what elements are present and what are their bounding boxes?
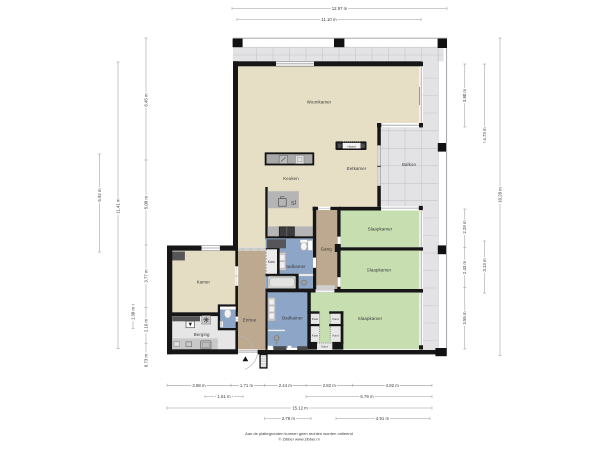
svg-text:3.55 m: 3.55 m xyxy=(462,311,467,325)
svg-text:2.29 m: 2.29 m xyxy=(462,220,467,234)
svg-text:0.73 m: 0.73 m xyxy=(143,354,148,368)
svg-text:Badkamer: Badkamer xyxy=(282,316,303,321)
svg-text:3.13 m: 3.13 m xyxy=(482,258,487,272)
svg-text:© Zibber www.zibber.nl: © Zibber www.zibber.nl xyxy=(279,436,320,441)
svg-text:Gang: Gang xyxy=(321,247,333,252)
svg-text:Kast: Kast xyxy=(332,317,338,321)
svg-text:Woonkamer: Woonkamer xyxy=(307,100,332,105)
svg-text:1.38 m: 1.38 m xyxy=(130,307,135,321)
svg-text:S: S xyxy=(291,201,295,207)
svg-text:2.78 m: 2.78 m xyxy=(282,416,296,421)
svg-text:- 1.61 m -: - 1.61 m - xyxy=(215,394,234,399)
svg-text:Slaapkamer: Slaapkamer xyxy=(367,267,392,272)
svg-text:6.79 m: 6.79 m xyxy=(360,394,374,399)
svg-text:2.82 m: 2.82 m xyxy=(323,383,337,388)
svg-text:Keuken: Keuken xyxy=(283,176,299,181)
svg-text:Badkamer: Badkamer xyxy=(285,264,306,269)
svg-text:Kast: Kast xyxy=(268,260,275,264)
svg-text:3.88 m: 3.88 m xyxy=(192,383,206,388)
svg-text:1.71 m: 1.71 m xyxy=(240,383,254,388)
svg-text:5.08 m: 5.08 m xyxy=(143,196,148,210)
svg-text:Eetkamer: Eetkamer xyxy=(347,166,367,171)
svg-text:Balkon: Balkon xyxy=(402,162,416,167)
svg-text:15.12 m: 15.12 m xyxy=(292,406,308,411)
svg-text:Slaapkamer: Slaapkamer xyxy=(368,226,393,231)
svg-text:3.77 m: 3.77 m xyxy=(143,269,148,283)
svg-text:Slaapkamer: Slaapkamer xyxy=(358,316,383,321)
svg-text:2.43 m: 2.43 m xyxy=(462,261,467,275)
svg-text:10.28 m: 10.28 m xyxy=(497,187,502,203)
svg-text:4.82 m: 4.82 m xyxy=(386,383,400,388)
svg-text:6.45 m: 6.45 m xyxy=(143,93,148,107)
svg-text:12.97 m: 12.97 m xyxy=(332,6,348,11)
svg-text:Kamer: Kamer xyxy=(197,280,211,285)
svg-text:2.44 m: 2.44 m xyxy=(279,383,293,388)
svg-text:4.73 m: 4.73 m xyxy=(482,127,487,141)
svg-text:Kast: Kast xyxy=(312,334,318,338)
svg-text:2.16 m: 2.16 m xyxy=(143,319,148,333)
svg-text:Kast: Kast xyxy=(312,317,318,321)
svg-text:Berging: Berging xyxy=(194,332,210,337)
svg-text:Kast: Kast xyxy=(332,334,338,338)
svg-text:Haard: Haard xyxy=(348,145,357,149)
svg-text:11.41 m: 11.41 m xyxy=(115,198,120,214)
svg-text:Kast: Kast xyxy=(321,344,327,348)
svg-text:11.10 m: 11.10 m xyxy=(321,17,337,22)
svg-text:4.91 m: 4.91 m xyxy=(376,416,390,421)
svg-text:5.92 m: 5.92 m xyxy=(97,188,102,202)
svg-text:3.80 m: 3.80 m xyxy=(462,89,467,103)
svg-text:Entree: Entree xyxy=(243,318,257,323)
